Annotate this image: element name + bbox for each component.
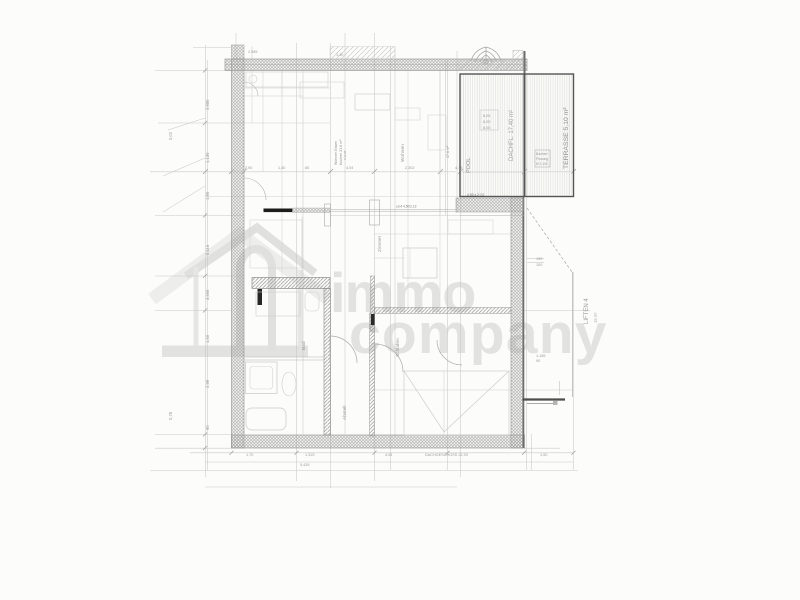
svg-text:≥0,4 4,50/2,13: ≥0,4 4,50/2,13 <box>396 205 417 209</box>
svg-text:80: 80 <box>305 166 309 170</box>
svg-text:LIFTEN 4: LIFTEN 4 <box>584 298 590 324</box>
svg-text:5,435: 5,435 <box>300 463 310 467</box>
svg-text:Wohnen: Wohnen <box>400 144 406 162</box>
svg-text:DACHGESCHOSS 22,93: DACHGESCHOSS 22,93 <box>425 453 468 457</box>
svg-text:Wohnen Essen: Wohnen Essen <box>334 141 338 165</box>
svg-text:1,30: 1,30 <box>278 166 285 170</box>
svg-text:8,05: 8,05 <box>483 126 490 130</box>
svg-text:Schlafen: Schlafen <box>395 338 401 357</box>
svg-text:4,19: 4,19 <box>455 166 462 170</box>
svg-text:150: 150 <box>536 257 542 261</box>
svg-text:1,50: 1,50 <box>540 453 547 457</box>
svg-text:1,50: 1,50 <box>205 334 210 343</box>
svg-text:2,985: 2,985 <box>205 99 210 110</box>
svg-text:DACHFL. 17,40 m²: DACHFL. 17,40 m² <box>509 110 515 161</box>
svg-text:1,135: 1,135 <box>205 152 210 163</box>
svg-text:0,78: 0,78 <box>168 411 173 420</box>
svg-text:0,02: 0,02 <box>168 131 173 140</box>
svg-text:90: 90 <box>205 425 210 430</box>
svg-text:Bauherr: Bauherr <box>536 152 549 156</box>
svg-text:Abstell: Abstell <box>342 406 348 420</box>
svg-text:4,04: 4,04 <box>385 453 392 457</box>
svg-text:2,302: 2,302 <box>405 166 415 170</box>
svg-text:2,985: 2,985 <box>248 50 258 54</box>
svg-text:h=2,40: h=2,40 <box>343 150 347 160</box>
svg-text:2,90: 2,90 <box>245 166 252 170</box>
svg-text:0,115: 0,115 <box>205 244 210 255</box>
svg-text:8,05: 8,05 <box>483 120 490 124</box>
svg-text:2,99: 2,99 <box>205 379 210 388</box>
svg-text:4,50 x 2,13: 4,50 x 2,13 <box>467 193 484 197</box>
svg-text:1,40: 1,40 <box>336 53 343 57</box>
svg-text:8,05: 8,05 <box>483 114 490 118</box>
svg-text:1,185: 1,185 <box>536 354 546 358</box>
svg-text:90: 90 <box>536 359 540 363</box>
svg-text:15 m²: 15 m² <box>593 312 598 323</box>
svg-text:4,04: 4,04 <box>346 166 353 170</box>
svg-text:1,90: 1,90 <box>205 191 210 200</box>
svg-text:17,6 m²: 17,6 m² <box>446 145 450 158</box>
svg-text:TERRASSE 5,10 m²: TERRASSE 5,10 m² <box>563 107 570 169</box>
svg-text:3,565: 3,565 <box>205 289 210 300</box>
svg-text:M 1:100: M 1:100 <box>536 162 548 166</box>
svg-text:Planung: Planung <box>536 157 548 161</box>
svg-text:Zimmer: Zimmer <box>377 235 383 252</box>
svg-text:Bad: Bad <box>301 341 307 350</box>
svg-text:POOL: POOL <box>466 158 472 173</box>
svg-text:100: 100 <box>536 263 542 267</box>
svg-text:1,70: 1,70 <box>246 453 253 457</box>
svg-text:1,315: 1,315 <box>305 453 315 457</box>
